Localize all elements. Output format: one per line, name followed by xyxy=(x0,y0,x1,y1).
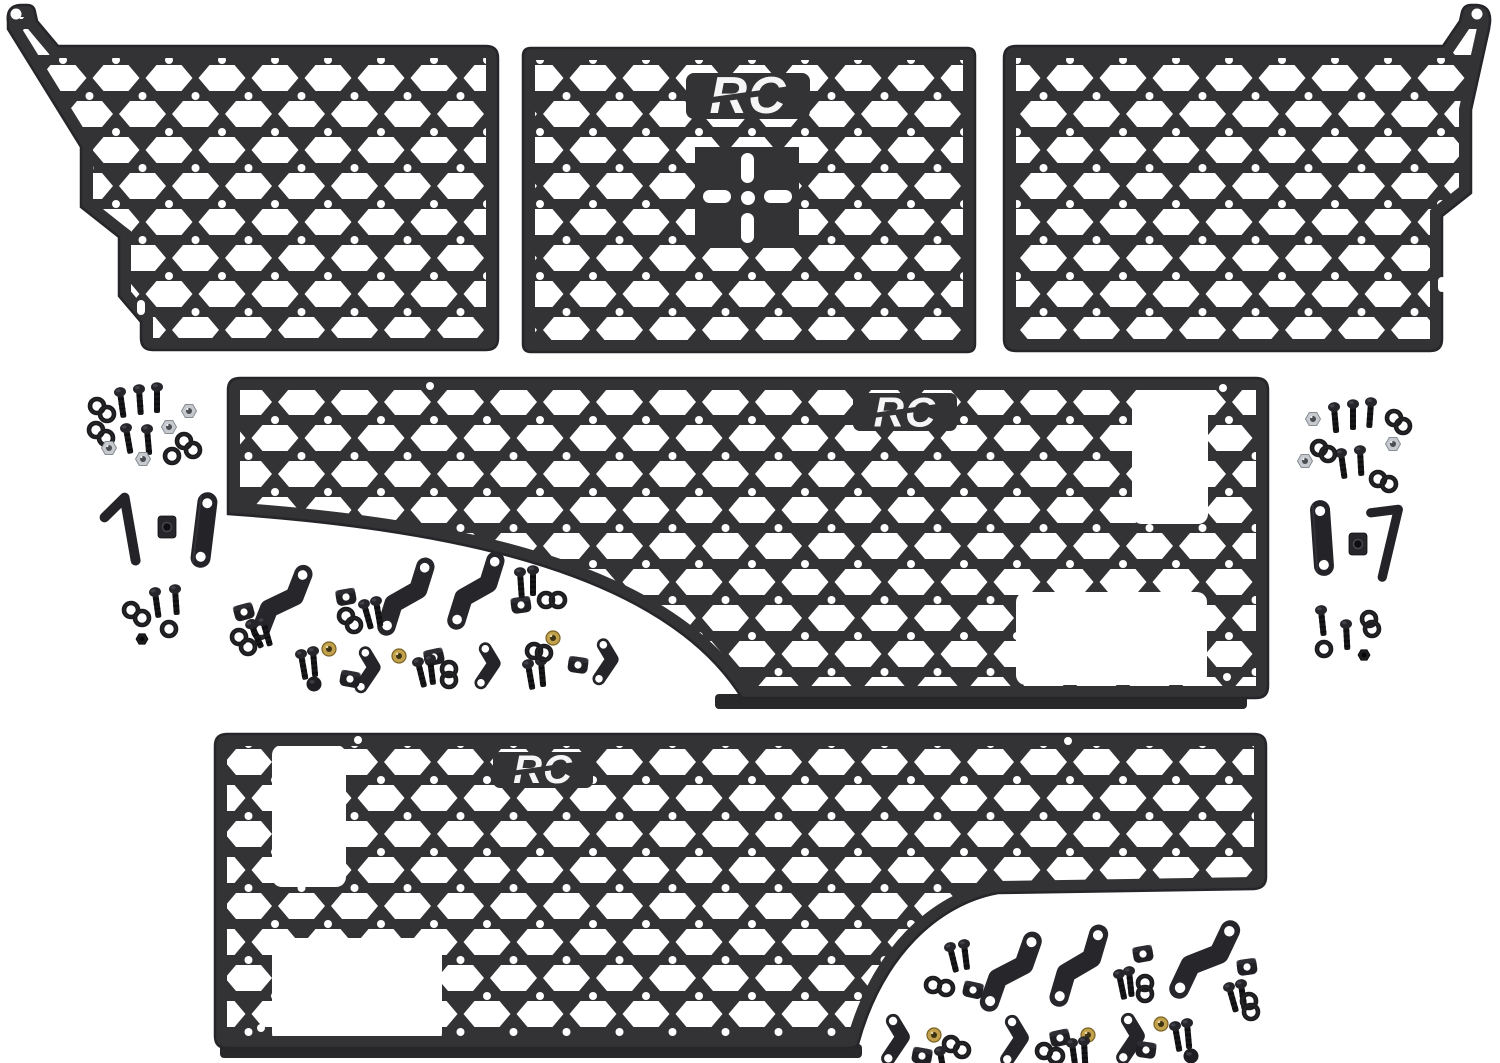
access-cutout xyxy=(272,938,442,1045)
washer-hardware xyxy=(1049,1049,1063,1063)
nut-dark-hardware xyxy=(136,634,148,644)
zsmall-hardware xyxy=(472,644,497,688)
nut-brass-hardware xyxy=(1154,1017,1168,1031)
zsmall-hardware xyxy=(879,1016,907,1063)
bolt-hardware xyxy=(1363,397,1377,429)
mount-hole xyxy=(426,382,434,390)
nut-brass-hardware xyxy=(322,642,336,656)
bolt-hardware xyxy=(151,382,163,413)
bolt-hardware xyxy=(957,939,973,971)
washer-hardware xyxy=(100,407,114,421)
nut-silver-hardware xyxy=(1298,455,1313,468)
washer-hardware xyxy=(1382,477,1396,491)
clamp-hardware xyxy=(1132,944,1154,963)
edge-notch xyxy=(137,300,145,315)
mount-hole xyxy=(354,736,362,744)
zlong-hardware xyxy=(253,568,311,638)
washer-hardware xyxy=(537,646,551,660)
clamp-hardware xyxy=(911,1046,933,1063)
strap-hardware xyxy=(1309,499,1334,576)
washer-hardware xyxy=(135,611,149,625)
nut-silver-hardware xyxy=(182,405,197,418)
mount-hole xyxy=(1064,737,1072,745)
bolt-hardware xyxy=(1181,1018,1196,1050)
bolt-hardware xyxy=(1340,619,1354,650)
washer-hardware xyxy=(165,449,179,463)
mount-tab-hole xyxy=(1472,9,1483,20)
rc-logo: RC xyxy=(686,67,810,125)
washer-hardware xyxy=(1138,987,1152,1001)
block-hardware xyxy=(158,516,176,538)
panel-top-right xyxy=(1002,4,1494,353)
washer-hardware xyxy=(241,640,255,654)
lbracket-hardware xyxy=(103,497,136,563)
zsmall-hardware xyxy=(590,640,615,684)
strap-hardware xyxy=(189,491,218,569)
zlong-hardware xyxy=(449,554,503,626)
bolt-hardware xyxy=(1315,605,1330,637)
clamp-hardware xyxy=(339,669,361,688)
nut-silver-hardware xyxy=(162,421,177,434)
panel-top-center: RC xyxy=(523,48,975,352)
mount-hole xyxy=(257,1024,265,1032)
access-cutout xyxy=(1016,592,1207,685)
washer-hardware xyxy=(1396,419,1410,433)
nut-brass-hardware xyxy=(927,1028,941,1042)
mount-hole xyxy=(1223,673,1231,681)
edge-notch xyxy=(1438,277,1446,292)
nut-dark-hardware xyxy=(1358,650,1370,660)
rc-logo: RC xyxy=(853,389,957,436)
bolt-hardware xyxy=(1328,402,1343,434)
stake-pocket-cutout xyxy=(272,745,346,887)
bolt-hardware xyxy=(169,584,183,616)
bolt-hardware xyxy=(1347,399,1359,430)
mount-tab-hole xyxy=(11,9,22,20)
washer-hardware xyxy=(939,981,953,995)
product-image-molle-panel-kit: RC RC xyxy=(0,0,1500,1063)
bolt-hardware xyxy=(119,422,136,454)
zlong-hardware xyxy=(379,560,433,632)
washer-hardware xyxy=(1317,642,1331,656)
clamp-hardware xyxy=(1236,958,1258,977)
clamp-hardware xyxy=(962,980,985,1000)
nut-silver-hardware xyxy=(1386,438,1401,451)
mounting-cross xyxy=(695,147,799,248)
washer-hardware xyxy=(347,618,361,632)
washer-hardware xyxy=(955,1043,969,1057)
bolt-hardware xyxy=(148,586,164,618)
nut-silver-hardware xyxy=(136,453,151,466)
zsmall-hardware xyxy=(998,1017,1026,1063)
washer-hardware xyxy=(1321,447,1335,461)
nut-brass-hardware xyxy=(392,649,406,663)
stake-pocket-cutout xyxy=(1132,390,1208,524)
washer-hardware xyxy=(162,622,176,636)
dome-hardware xyxy=(1184,1049,1199,1063)
clamp-hardware xyxy=(567,656,589,675)
zlong-hardware xyxy=(1051,928,1107,1004)
block-hardware xyxy=(1349,533,1367,555)
bolt-hardware xyxy=(1078,1036,1092,1063)
panel-top-left xyxy=(8,4,500,352)
bolt-hardware xyxy=(514,567,528,599)
bolt-hardware xyxy=(1354,445,1368,476)
zlong-hardware xyxy=(981,935,1040,1009)
bolt-hardware xyxy=(307,646,322,678)
panel-middle-bed-side: RC xyxy=(215,375,1271,701)
nut-silver-hardware xyxy=(1306,413,1321,426)
bolt-hardware xyxy=(527,565,539,596)
bolt-hardware xyxy=(141,424,156,456)
product-illustration: RC RC xyxy=(0,0,1500,1063)
clamp-hardware xyxy=(1135,1041,1157,1060)
rc-logo: RC xyxy=(493,748,593,792)
nut-brass-hardware xyxy=(546,631,560,645)
clamp-hardware xyxy=(510,596,532,615)
clamp-hardware xyxy=(335,587,357,606)
mount-hole xyxy=(1219,384,1227,392)
nut-silver-hardware xyxy=(102,442,117,455)
dome-hardware xyxy=(307,677,322,692)
washer-hardware xyxy=(186,443,200,457)
washer-hardware xyxy=(442,673,456,687)
washer-hardware xyxy=(1365,622,1379,636)
panel-bottom-bed-side: RC xyxy=(212,731,1268,1051)
washer-hardware xyxy=(1244,1005,1258,1019)
anglekey-hardware xyxy=(1371,509,1399,577)
bolt-hardware xyxy=(133,384,147,416)
washer-hardware xyxy=(551,593,565,607)
